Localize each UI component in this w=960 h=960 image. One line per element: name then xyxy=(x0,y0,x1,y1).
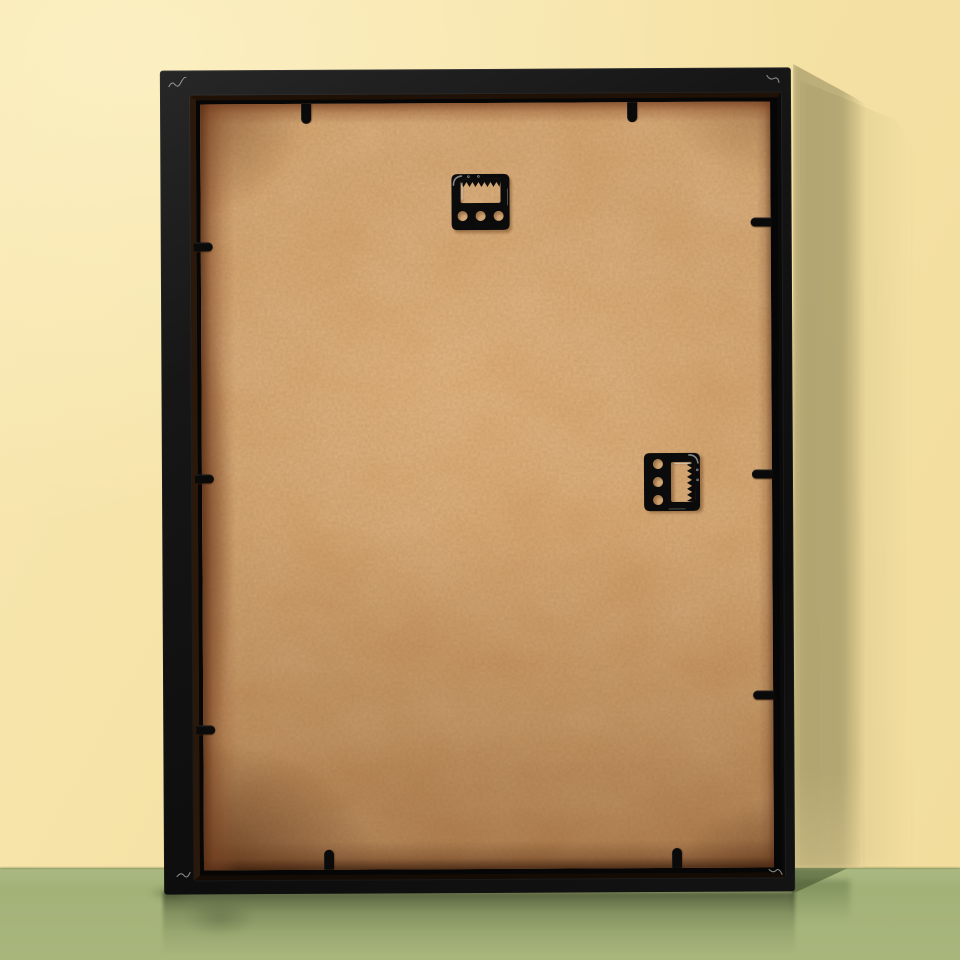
retainer-tab-left-3 xyxy=(196,725,215,734)
floor-shadow-reflection xyxy=(792,880,850,922)
retainer-tab-left-2 xyxy=(195,474,214,483)
frame-floor-reflection xyxy=(163,892,795,954)
wall-shadow-bounce-light xyxy=(793,770,863,868)
corner-glint-bottom-left xyxy=(177,873,190,878)
retainer-tab-bottom-2 xyxy=(672,848,682,868)
scene xyxy=(0,0,960,960)
corner-glint-top-left xyxy=(169,77,186,86)
retainer-tab-top-1 xyxy=(301,104,311,124)
retainer-tab-bottom-1 xyxy=(324,850,334,870)
wall-cast-shadow xyxy=(793,58,865,868)
retainer-tab-right-3 xyxy=(753,690,774,699)
picture-frame-back xyxy=(160,67,795,894)
retainer-tab-top-2 xyxy=(627,102,637,122)
frame-reflection-detail xyxy=(185,900,255,936)
corner-glint-top-right xyxy=(767,75,779,82)
mdf-backing-board xyxy=(200,101,774,870)
retainer-tab-right-1 xyxy=(751,217,772,226)
retainer-tab-right-2 xyxy=(752,469,773,478)
retainer-tab-left-1 xyxy=(194,242,213,251)
